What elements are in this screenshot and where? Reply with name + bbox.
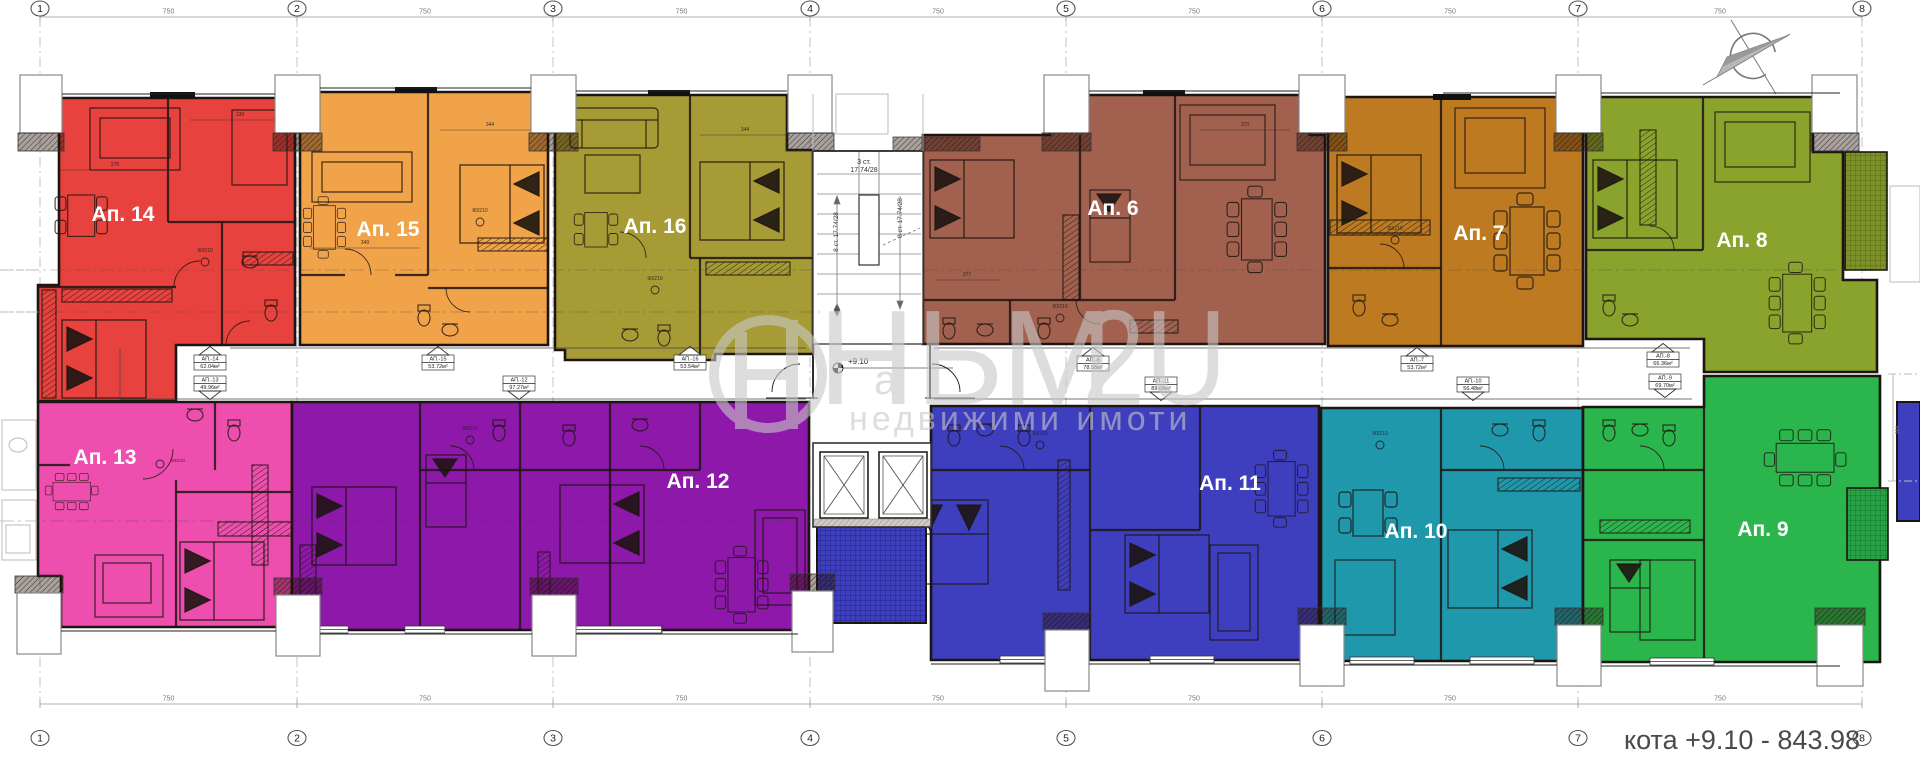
svg-text:Ап. 16: Ап. 16 xyxy=(624,215,687,238)
svg-text:АП.-12: АП.-12 xyxy=(510,378,527,384)
svg-text:373: 373 xyxy=(1241,122,1250,128)
svg-text:6: 6 xyxy=(1319,3,1325,15)
svg-text:2: 2 xyxy=(294,3,300,15)
svg-text:750: 750 xyxy=(419,9,431,16)
svg-text:1: 1 xyxy=(37,733,43,745)
svg-text:8 ст. 17.74/28: 8 ст. 17.74/28 xyxy=(833,212,840,252)
svg-text:377: 377 xyxy=(963,272,972,278)
svg-text:750: 750 xyxy=(932,9,944,16)
svg-text:49.96м²: 49.96м² xyxy=(200,385,220,391)
svg-text:4: 4 xyxy=(807,3,813,15)
svg-text:750: 750 xyxy=(419,696,431,703)
svg-text:53.72м²: 53.72м² xyxy=(428,364,448,370)
svg-text:7: 7 xyxy=(1575,733,1581,745)
svg-text:АП.-9: АП.-9 xyxy=(1658,376,1672,382)
svg-text:56.48м²: 56.48м² xyxy=(1463,386,1483,392)
svg-text:7: 7 xyxy=(1575,3,1581,15)
svg-text:АП.-10: АП.-10 xyxy=(1464,379,1481,385)
svg-text:8 ст. 17.74/28: 8 ст. 17.74/28 xyxy=(897,198,904,238)
svg-text:750: 750 xyxy=(1444,696,1456,703)
svg-text:344: 344 xyxy=(486,122,495,128)
svg-text:1: 1 xyxy=(37,3,43,15)
svg-text:Ап. 7: Ап. 7 xyxy=(1453,222,1504,245)
svg-text:53.72м²: 53.72м² xyxy=(1407,365,1427,371)
svg-text:3 ст.: 3 ст. xyxy=(857,159,871,166)
svg-text:90/210: 90/210 xyxy=(171,458,185,463)
svg-text:66.36м²: 66.36м² xyxy=(1653,361,1673,367)
svg-text:кота +9.10 - 843.98: кота +9.10 - 843.98 xyxy=(1624,725,1860,755)
svg-text:Ап. 6: Ап. 6 xyxy=(1087,197,1138,220)
svg-text:4: 4 xyxy=(807,733,813,745)
svg-text:3: 3 xyxy=(550,3,556,15)
svg-text:97.27м²: 97.27м² xyxy=(509,385,529,391)
svg-text:3: 3 xyxy=(550,733,556,745)
svg-text:750: 750 xyxy=(1188,9,1200,16)
svg-text:Ап. 14: Ап. 14 xyxy=(92,203,155,226)
svg-text:8: 8 xyxy=(1859,3,1865,15)
svg-text:АП.-14: АП.-14 xyxy=(201,357,218,363)
svg-text:Ап. 15: Ап. 15 xyxy=(357,218,420,241)
svg-text:а: а xyxy=(874,356,898,403)
svg-text:750: 750 xyxy=(1444,9,1456,16)
svg-text:90/210: 90/210 xyxy=(647,276,663,282)
svg-text:69.70м²: 69.70м² xyxy=(1655,383,1675,389)
svg-text:62.04м²: 62.04м² xyxy=(200,364,220,370)
svg-text:АП.-16: АП.-16 xyxy=(681,357,698,363)
svg-text:Ап. 13: Ап. 13 xyxy=(74,446,137,469)
svg-text:90/210: 90/210 xyxy=(462,426,478,432)
svg-text:276: 276 xyxy=(111,162,120,168)
svg-text:984: 984 xyxy=(1895,426,1901,435)
svg-text:Ап. 10: Ап. 10 xyxy=(1385,520,1448,543)
svg-text:АП.-13: АП.-13 xyxy=(201,378,218,384)
svg-text:Ап. 11: Ап. 11 xyxy=(1199,472,1261,495)
svg-text:АП.-15: АП.-15 xyxy=(429,357,446,363)
svg-text:АП.-7: АП.-7 xyxy=(1410,358,1424,364)
svg-text:750: 750 xyxy=(676,9,688,16)
svg-text:Ап. 9: Ап. 9 xyxy=(1737,518,1788,541)
svg-text:90/210: 90/210 xyxy=(1387,226,1403,232)
svg-text:6: 6 xyxy=(1319,733,1325,745)
svg-text:330: 330 xyxy=(236,112,245,118)
svg-text:5: 5 xyxy=(1063,733,1069,745)
svg-text:53.54м²: 53.54м² xyxy=(680,364,700,370)
svg-text:80/210: 80/210 xyxy=(472,208,488,214)
svg-text:750: 750 xyxy=(163,9,175,16)
svg-text:750: 750 xyxy=(1714,696,1726,703)
svg-text:90/210: 90/210 xyxy=(197,248,213,254)
svg-text:750: 750 xyxy=(1714,9,1726,16)
svg-text:5: 5 xyxy=(1063,3,1069,15)
svg-text:344: 344 xyxy=(741,127,750,133)
svg-text:АП.-8: АП.-8 xyxy=(1656,354,1670,360)
svg-text:750: 750 xyxy=(1188,696,1200,703)
svg-text:Ап. 8: Ап. 8 xyxy=(1716,229,1768,252)
svg-text:недвижими имоти: недвижими имоти xyxy=(849,400,1191,438)
svg-text:750: 750 xyxy=(932,696,944,703)
svg-text:90/210: 90/210 xyxy=(1372,431,1388,437)
svg-text:750: 750 xyxy=(676,696,688,703)
svg-text:2: 2 xyxy=(294,733,300,745)
svg-text:750: 750 xyxy=(163,696,175,703)
svg-text:17.74/28: 17.74/28 xyxy=(850,167,877,174)
svg-text:Ап. 12: Ап. 12 xyxy=(667,470,730,493)
